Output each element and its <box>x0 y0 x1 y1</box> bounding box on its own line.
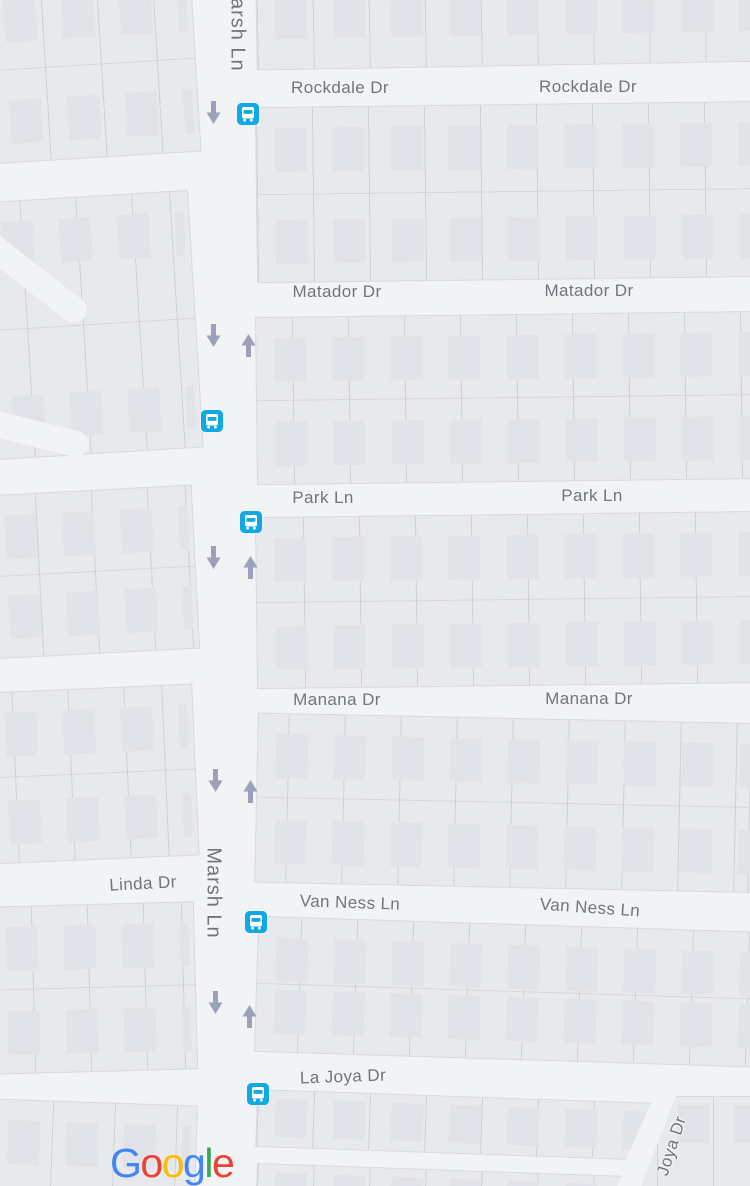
google-logo-letter: o <box>140 1140 161 1186</box>
one-way-arrow-up-icon <box>242 1005 257 1028</box>
street-label-van-ness-ln: Van Ness Ln <box>539 895 641 922</box>
city-block <box>254 916 750 1068</box>
one-way-arrow-up-icon <box>243 780 258 803</box>
street-label-linda-dr: Linda Dr <box>109 872 177 896</box>
street-label-rockdale-dr: Rockdale Dr <box>539 77 637 97</box>
street-label-van-ness-ln: Van Ness Ln <box>299 891 400 914</box>
bus-stop-icon[interactable] <box>240 511 262 533</box>
city-block <box>255 101 750 283</box>
google-logo-letter: g <box>183 1140 204 1186</box>
google-logo-letter: e <box>212 1140 233 1186</box>
city-block <box>0 901 198 1074</box>
one-way-arrow-up-icon <box>241 334 256 357</box>
google-logo-letter: o <box>162 1140 183 1186</box>
bus-stop-icon[interactable] <box>201 410 223 432</box>
street-label-matador-dr: Matador Dr <box>292 282 381 302</box>
one-way-arrow-down-icon <box>208 991 223 1014</box>
city-block <box>255 511 750 689</box>
one-way-arrow-down-icon <box>206 324 221 347</box>
street-label-park-ln: Park Ln <box>561 486 622 506</box>
street-label-la-joya-dr: La Joya Dr <box>300 1066 387 1089</box>
one-way-arrow-down-icon <box>208 769 223 792</box>
google-logo[interactable]: Google <box>110 1140 233 1186</box>
google-logo-letter: G <box>110 1140 140 1186</box>
street-label-marsh-ln: Marsh Ln <box>226 0 249 72</box>
bus-stop-icon[interactable] <box>245 911 267 933</box>
one-way-arrow-down-icon <box>206 546 221 569</box>
street-label-rockdale-dr: Rockdale Dr <box>291 78 389 98</box>
street-label-manana-dr: Manana Dr <box>293 690 381 710</box>
city-block <box>255 0 750 71</box>
bus-stop-icon[interactable] <box>237 103 259 125</box>
street-label-matador-dr: Matador Dr <box>544 281 633 301</box>
city-block <box>0 0 201 164</box>
map-canvas[interactable]: Rockdale Dr Rockdale Dr Matador Dr Matad… <box>0 0 750 1186</box>
google-logo-letter: l <box>204 1140 212 1186</box>
street-label-marsh-ln: Marsh Ln <box>202 847 225 938</box>
city-block <box>0 485 200 660</box>
bus-stop-icon[interactable] <box>247 1083 269 1105</box>
street-label-park-ln: Park Ln <box>292 488 353 508</box>
one-way-arrow-down-icon <box>206 101 221 124</box>
one-way-arrow-up-icon <box>243 556 258 579</box>
street-label-manana-dr: Manana Dr <box>545 689 633 709</box>
city-block <box>254 713 750 894</box>
city-block <box>255 311 750 485</box>
city-block <box>0 684 200 865</box>
